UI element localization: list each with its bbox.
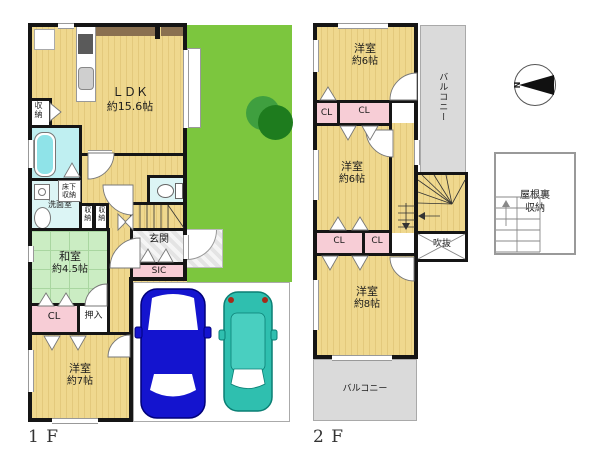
bathtub-water bbox=[37, 135, 53, 174]
floor2-label: 2 F bbox=[313, 427, 344, 447]
room-washitsu-label: 和室 約4.5帖 bbox=[35, 250, 105, 276]
room-name: 洋室 bbox=[330, 42, 400, 56]
window-band bbox=[187, 48, 201, 128]
counter-strip bbox=[93, 26, 155, 36]
stove-icon bbox=[78, 34, 93, 54]
void-text: 吹抜 bbox=[433, 239, 451, 249]
room-size: 約6帖 bbox=[317, 174, 387, 187]
room-ldk-label: ＬＤＫ 約15.6帖 bbox=[95, 85, 165, 114]
room-ldk-size: 約15.6帖 bbox=[95, 100, 165, 114]
storage-closet-nw-label: 収納 bbox=[33, 101, 43, 119]
room-size: 約6帖 bbox=[330, 56, 400, 69]
closet-2f-b-label: CL bbox=[350, 106, 378, 117]
bathroom bbox=[28, 125, 82, 181]
stairs-2f bbox=[415, 172, 468, 234]
toilet-tank bbox=[175, 183, 183, 199]
closet-1f-label: CL bbox=[40, 311, 68, 324]
room-name: 洋室 bbox=[317, 160, 387, 174]
room-yoshitsu-6-mid-label: 洋室 約6帖 bbox=[317, 160, 387, 186]
balcony-north-label: バルコニー bbox=[436, 72, 447, 122]
closet-2f-a-label: CL bbox=[317, 108, 336, 119]
room-yoshitsu-7-name: 洋室 bbox=[45, 362, 115, 376]
room-name: 洋室 bbox=[332, 285, 402, 299]
oshiire-label: 押入 bbox=[80, 311, 107, 322]
room-washitsu-name: 和室 bbox=[35, 250, 105, 264]
sink-icon bbox=[78, 67, 94, 90]
room-washitsu-size: 約4.5帖 bbox=[35, 264, 105, 277]
room-yoshitsu-7-label: 洋室 約7帖 bbox=[45, 362, 115, 388]
storage-closet-hall-a-label: 収納 bbox=[83, 206, 92, 222]
toilet-icon bbox=[157, 184, 174, 198]
floor1-label: 1 F bbox=[28, 427, 59, 447]
refrigerator-space bbox=[34, 29, 55, 50]
stairs-1f bbox=[130, 202, 187, 231]
room-yoshitsu-8-label: 洋室 約8帖 bbox=[332, 285, 402, 311]
attic-storage-label: 屋根裏収納 bbox=[518, 190, 552, 215]
closet-2f-c-label: CL bbox=[325, 236, 353, 247]
sink-basin-icon bbox=[34, 207, 51, 229]
compass-north-label: N bbox=[513, 79, 523, 91]
room-size: 約8帖 bbox=[332, 299, 402, 312]
washing-machine-drum bbox=[38, 188, 46, 196]
room-yoshitsu-6-north-label: 洋室 約6帖 bbox=[330, 42, 400, 68]
room-yoshitsu-7-size: 約7帖 bbox=[45, 376, 115, 389]
entrance-label: 玄関 bbox=[138, 234, 180, 247]
driveway bbox=[133, 282, 290, 422]
closet-2f-d-label: CL bbox=[366, 236, 388, 247]
room-ldk-name: ＬＤＫ bbox=[95, 85, 165, 100]
balcony-south-label: バルコニー bbox=[330, 384, 400, 395]
tree-icon bbox=[258, 105, 293, 140]
toilet-room bbox=[147, 175, 187, 205]
sic-label: SIC bbox=[138, 266, 180, 277]
floor-plan-figure: ＬＤＫ 約15.6帖 収納 洗面室 床下収納 収納 収納 玄関 SIC 和室 約… bbox=[0, 0, 600, 463]
storage-closet-hall-b-label: 収納 bbox=[97, 206, 106, 222]
underfloor-storage-label: 床下収納 bbox=[61, 183, 77, 200]
void-label: 吹抜 bbox=[425, 239, 459, 250]
